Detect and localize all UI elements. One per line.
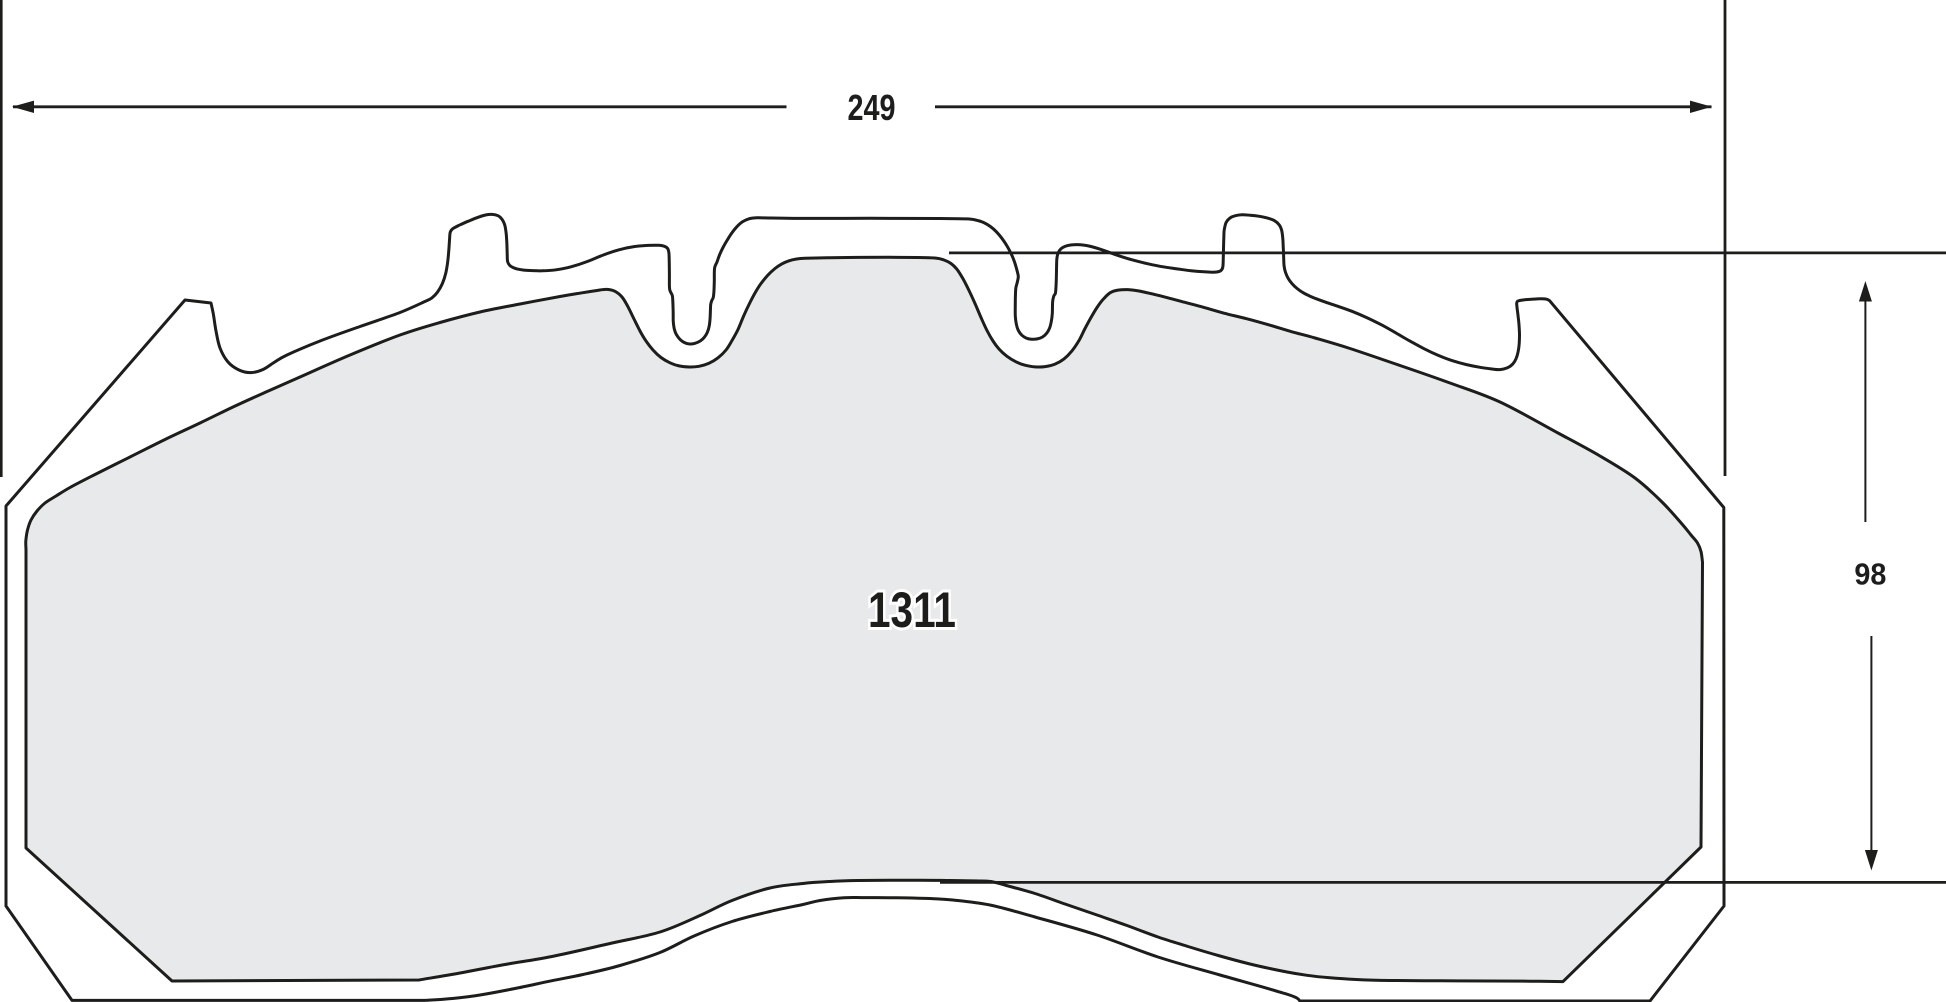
- svg-text:1311: 1311: [868, 582, 956, 638]
- svg-text:249: 249: [848, 87, 896, 128]
- svg-text:98: 98: [1854, 557, 1886, 592]
